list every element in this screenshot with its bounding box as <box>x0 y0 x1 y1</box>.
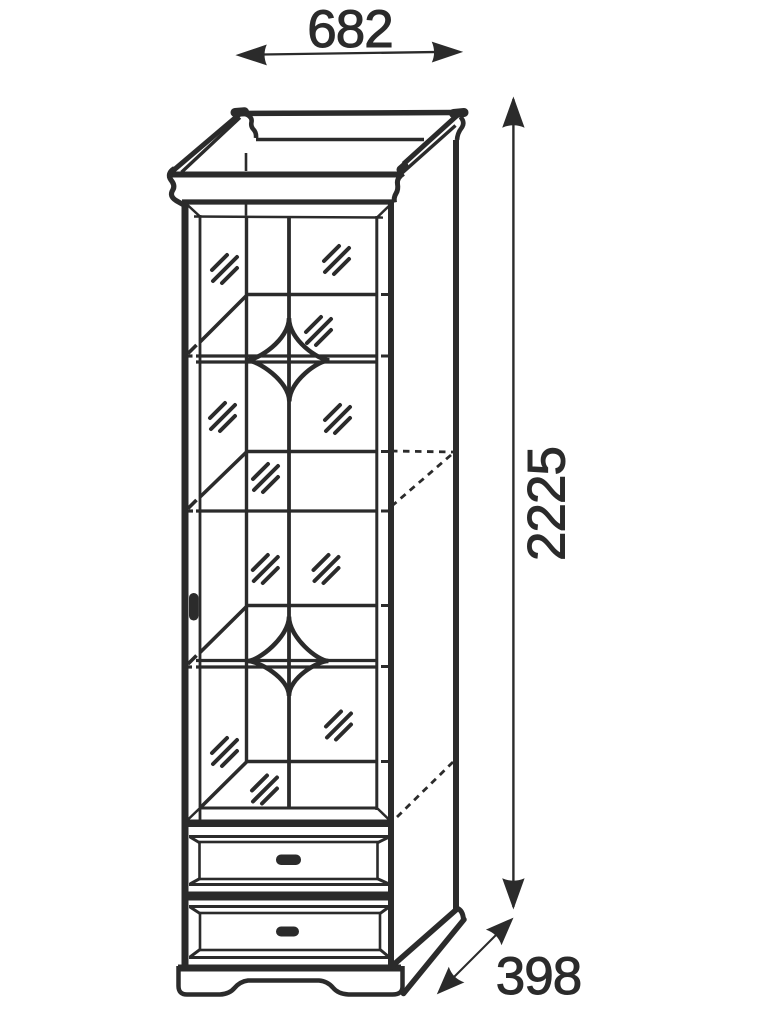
svg-text:682: 682 <box>307 0 392 59</box>
svg-text:398: 398 <box>496 947 581 1006</box>
svg-text:2225: 2225 <box>518 447 577 561</box>
